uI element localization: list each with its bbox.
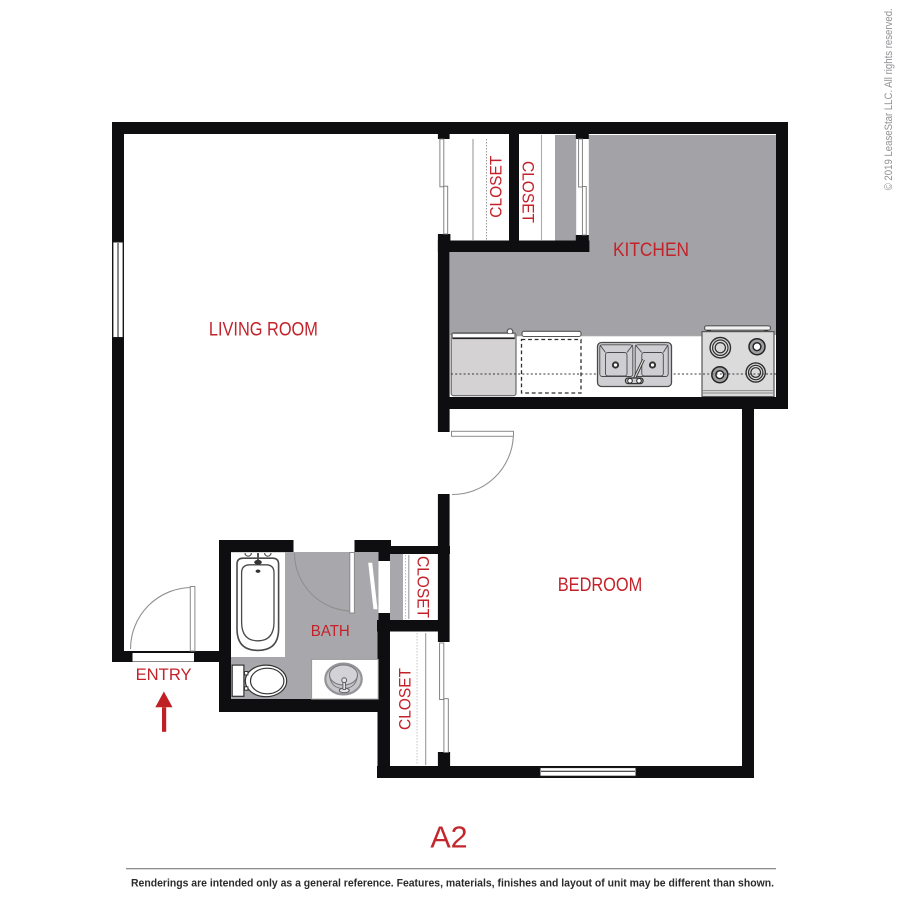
svg-text:LIVING ROOM: LIVING ROOM xyxy=(209,319,318,340)
svg-text:Renderings are intended only a: Renderings are intended only as a genera… xyxy=(131,878,774,890)
svg-text:BATH: BATH xyxy=(311,623,350,640)
svg-text:© 2019 LeaseStar LLC. All righ: © 2019 LeaseStar LLC. All rights reserve… xyxy=(883,8,895,190)
svg-text:CLOSET: CLOSET xyxy=(488,156,506,218)
svg-text:CLOSET: CLOSET xyxy=(414,556,432,618)
svg-text:CLOSET: CLOSET xyxy=(519,161,537,223)
svg-text:A2: A2 xyxy=(430,821,467,855)
svg-text:ENTRY: ENTRY xyxy=(136,665,192,684)
svg-text:CLOSET: CLOSET xyxy=(397,668,415,730)
svg-text:BEDROOM: BEDROOM xyxy=(558,575,643,596)
svg-text:KITCHEN: KITCHEN xyxy=(613,240,689,261)
